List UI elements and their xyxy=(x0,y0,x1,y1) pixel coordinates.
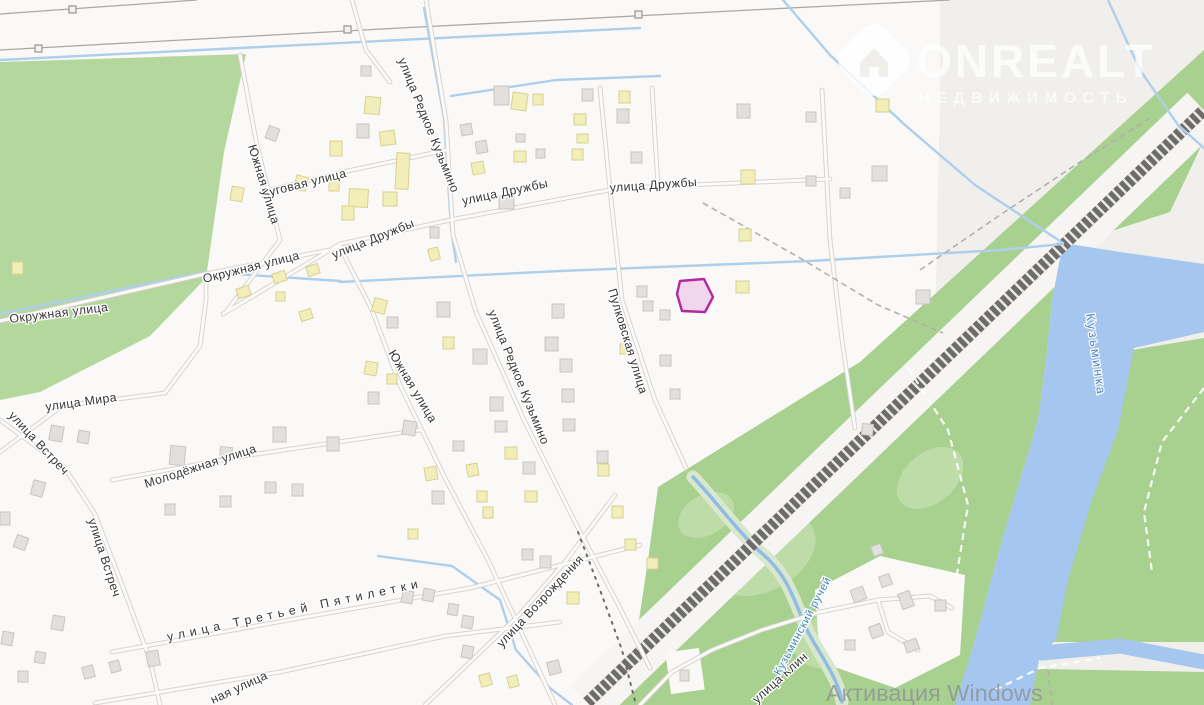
building xyxy=(424,466,438,481)
building xyxy=(660,355,671,366)
building xyxy=(466,463,479,477)
building xyxy=(523,462,535,474)
building xyxy=(276,292,285,301)
building xyxy=(77,430,90,444)
building xyxy=(739,229,751,241)
building xyxy=(273,427,286,442)
building xyxy=(840,188,850,198)
building xyxy=(741,170,755,184)
building xyxy=(567,592,579,604)
brand-name: ONREALT xyxy=(916,35,1156,87)
building xyxy=(402,420,417,436)
building xyxy=(327,437,339,451)
building xyxy=(447,603,459,616)
building xyxy=(230,186,244,202)
building xyxy=(495,421,507,432)
building xyxy=(443,337,454,349)
building xyxy=(371,298,387,315)
building xyxy=(364,361,378,376)
building xyxy=(383,192,397,206)
building xyxy=(572,149,583,160)
building xyxy=(806,176,816,186)
building xyxy=(525,491,537,502)
building xyxy=(680,670,689,681)
building xyxy=(619,91,630,103)
building xyxy=(574,114,586,125)
building xyxy=(408,529,418,539)
building xyxy=(395,153,410,190)
building xyxy=(522,549,533,560)
building xyxy=(612,506,623,518)
building xyxy=(460,123,473,136)
building xyxy=(547,660,562,676)
map[interactable]: улица Редкое Кузьмино Луговая улица улиц… xyxy=(0,0,1204,705)
building xyxy=(146,650,160,667)
building xyxy=(330,141,342,156)
building xyxy=(473,349,487,364)
building xyxy=(505,447,517,459)
building xyxy=(169,445,186,465)
building xyxy=(540,556,551,568)
building xyxy=(0,512,10,525)
building xyxy=(51,615,65,631)
building xyxy=(872,166,887,181)
building xyxy=(453,441,464,451)
building xyxy=(357,124,369,138)
building xyxy=(12,262,23,274)
building xyxy=(647,558,658,569)
building xyxy=(342,206,354,220)
building xyxy=(18,671,28,682)
building xyxy=(845,640,855,650)
building xyxy=(643,301,653,311)
building xyxy=(736,281,749,293)
building xyxy=(560,359,572,372)
highlighted-parcel[interactable] xyxy=(677,279,713,312)
building xyxy=(806,112,816,122)
building xyxy=(379,130,396,146)
building xyxy=(387,317,398,328)
building xyxy=(617,109,629,123)
building xyxy=(533,94,543,105)
building xyxy=(479,673,493,687)
building xyxy=(368,392,379,404)
building xyxy=(1,631,14,646)
building xyxy=(494,86,509,105)
building xyxy=(876,99,889,112)
building xyxy=(471,161,485,175)
building xyxy=(562,389,574,402)
building xyxy=(292,484,303,496)
building xyxy=(265,482,276,493)
building xyxy=(916,290,930,304)
building xyxy=(637,286,647,297)
building xyxy=(861,423,873,435)
building xyxy=(490,397,503,411)
building xyxy=(625,539,636,550)
building xyxy=(670,389,680,399)
building xyxy=(660,310,670,320)
building xyxy=(598,464,609,476)
building xyxy=(34,651,46,664)
building xyxy=(483,507,493,518)
building xyxy=(514,151,526,162)
building xyxy=(563,419,575,431)
building xyxy=(631,152,642,163)
building xyxy=(430,227,439,238)
building xyxy=(516,134,525,142)
building xyxy=(109,660,122,673)
building xyxy=(511,92,528,111)
building xyxy=(49,425,64,442)
building xyxy=(361,66,371,76)
building xyxy=(364,96,381,114)
building xyxy=(935,600,946,611)
building xyxy=(387,374,397,384)
brand-subtitle: НЕДВИЖИМОСТЬ xyxy=(919,90,1133,107)
building xyxy=(82,665,96,679)
building xyxy=(477,491,487,502)
windows-activation-watermark: Активация Windows xyxy=(826,680,1043,705)
building xyxy=(437,302,450,317)
building xyxy=(582,89,593,101)
building xyxy=(475,140,488,154)
building xyxy=(552,304,564,318)
building xyxy=(545,337,558,351)
building xyxy=(461,645,474,659)
building xyxy=(461,615,474,629)
building xyxy=(165,504,175,515)
building xyxy=(737,104,750,118)
building xyxy=(432,491,444,504)
building xyxy=(597,451,608,463)
building xyxy=(422,588,435,602)
building xyxy=(536,149,545,158)
building xyxy=(220,496,231,507)
building xyxy=(349,189,369,208)
building xyxy=(507,675,520,688)
building xyxy=(577,134,588,143)
